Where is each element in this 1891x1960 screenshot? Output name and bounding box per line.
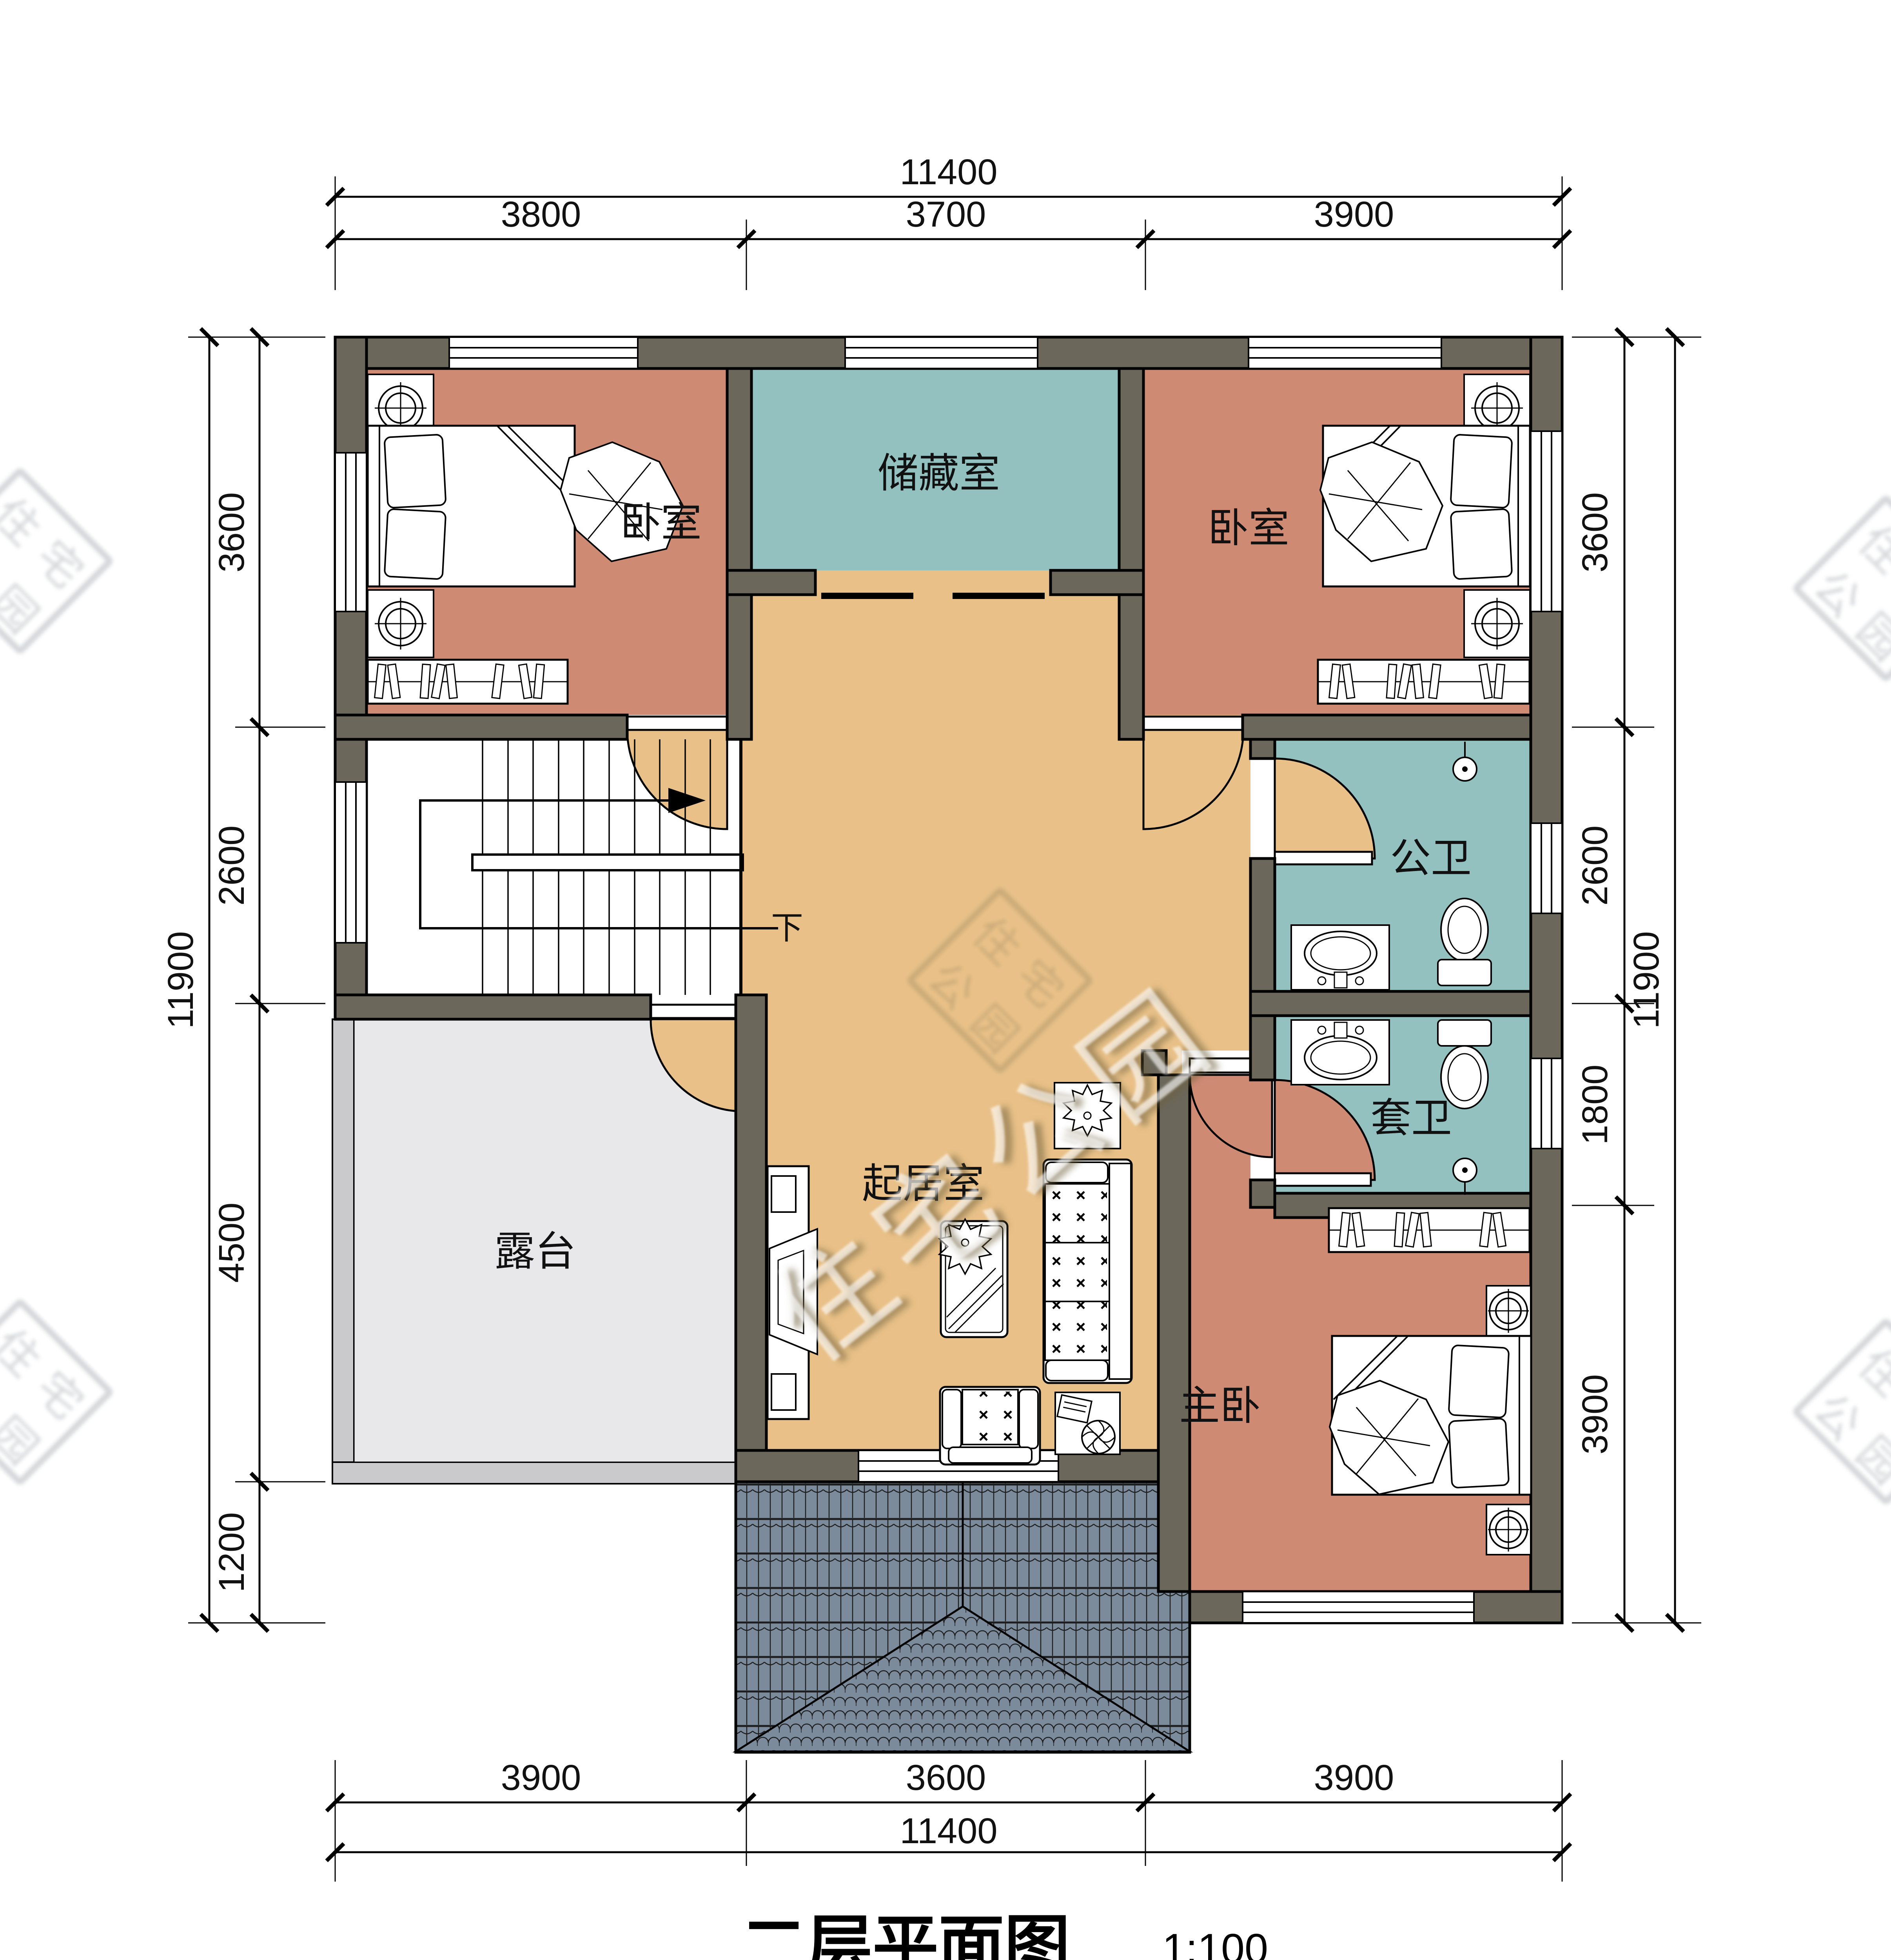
- dim-left-total: 11900: [161, 931, 201, 1029]
- label-storage: 储藏室: [878, 449, 1000, 497]
- window-stair-west: [335, 782, 367, 943]
- terrace-parapet-left: [332, 1019, 354, 1484]
- bookshelf: [368, 660, 568, 704]
- dim-bottom-seg-2: 3900: [1314, 1758, 1394, 1798]
- dim-top-seg-0: 3800: [501, 194, 581, 234]
- window-bedroomR-top: [1249, 337, 1441, 368]
- wall-storage-south-b: [1051, 570, 1143, 595]
- public-bath-door-leaf: [1275, 852, 1372, 864]
- title-scale: 1:100: [1162, 1925, 1268, 1960]
- label-bedroom-left: 卧室: [620, 498, 702, 546]
- window-ensuite-bath-east: [1531, 1058, 1562, 1149]
- dim-bottom-total: 11400: [900, 1811, 997, 1851]
- window-bedroomL-west: [335, 453, 367, 612]
- page-title: 二层平面图: [741, 1907, 1070, 1960]
- window-bedroomL-top: [449, 337, 638, 368]
- storage-opening-tick-left: [821, 593, 913, 599]
- label-master: 主卧: [1179, 1382, 1261, 1430]
- label-stair-down: 下: [771, 909, 803, 947]
- wall-bedroomR-south: [1243, 715, 1531, 739]
- floor-plan-drawing: 卧室 储藏室 卧室 公卫 套卫 起居室 露台 主卧 下 11400 3800 3…: [0, 0, 1891, 1960]
- pillow: [1448, 1345, 1509, 1417]
- wall-living-east: [1158, 1075, 1190, 1592]
- dimensions-right: 3600 2600 1800 3900 11900: [1572, 328, 1701, 1632]
- dim-bottom-seg-1: 3600: [906, 1758, 986, 1798]
- roof: [736, 1482, 1190, 1752]
- storage-opening-tick-right: [953, 593, 1045, 599]
- pillow: [385, 509, 446, 579]
- bookshelf: [1318, 660, 1530, 704]
- dim-left-seg-1: 2600: [212, 826, 252, 906]
- dim-left-seg-2: 4500: [212, 1203, 252, 1283]
- label-terrace: 露台: [494, 1227, 576, 1275]
- label-ensuite-bath: 套卫: [1370, 1094, 1452, 1142]
- sink: [1291, 925, 1389, 990]
- label-bedroom-right: 卧室: [1208, 504, 1289, 552]
- bedroom-right-door-leaf: [1143, 717, 1243, 730]
- title-block: 二层平面图 1:100: [696, 1907, 1268, 1960]
- wall-stair-south: [335, 995, 651, 1019]
- terrace-door-leaf: [651, 1005, 743, 1018]
- pillow: [1449, 1418, 1509, 1488]
- dimensions-bottom: 3900 3600 3900 11400: [327, 1758, 1571, 1882]
- dimensions-left: 11900 3600 2600 4500 1200: [161, 328, 325, 1632]
- label-living: 起居室: [862, 1160, 984, 1207]
- wall-bath-west-b: [1250, 858, 1275, 1080]
- dim-right-seg-1: 2600: [1575, 826, 1615, 906]
- dim-right-seg-2: 1800: [1575, 1065, 1615, 1145]
- wall-bedroomL-south: [335, 715, 627, 739]
- dim-right-seg-0: 3600: [1575, 492, 1615, 573]
- wall-bath-divider: [1250, 991, 1531, 1016]
- side-table: [1054, 1083, 1120, 1149]
- wall-bedroomL-east: [727, 368, 751, 739]
- window-master-south: [1243, 1592, 1474, 1623]
- wall-hall-master-stub: [1142, 1051, 1166, 1075]
- dim-right-total: 11900: [1626, 931, 1666, 1029]
- wall-bath-west-a: [1250, 739, 1275, 759]
- wall-living-west: [736, 995, 766, 1450]
- dim-top-seg-2: 3900: [1314, 194, 1394, 234]
- dim-bottom-seg-0: 3900: [501, 1758, 581, 1798]
- armchair: [940, 1387, 1040, 1465]
- wall-bedroomR-west: [1119, 368, 1143, 739]
- dim-top-total: 11400: [900, 152, 997, 192]
- toilet: [1438, 898, 1491, 985]
- dim-top-seg-1: 3700: [906, 194, 986, 234]
- sink: [1291, 1020, 1389, 1085]
- stair-railing: [472, 855, 743, 870]
- pillow: [1450, 434, 1512, 508]
- dim-right-seg-3: 3900: [1575, 1374, 1615, 1455]
- magazine-table: [1055, 1392, 1120, 1454]
- bookshelf: [1329, 1208, 1530, 1252]
- terrace-parapet-bottom: [332, 1462, 736, 1484]
- label-public-bath: 公卫: [1390, 834, 1472, 882]
- floor-plan-canvas: 卧室 储藏室 卧室 公卫 套卫 起居室 露台 主卧 下 11400 3800 3…: [0, 0, 1891, 1960]
- pillow: [384, 434, 446, 508]
- dimensions-top: 11400 3800 3700 3900: [327, 152, 1571, 290]
- window-storage-top: [845, 337, 1038, 368]
- window-bedroomR-east: [1531, 431, 1562, 612]
- dim-left-seg-0: 3600: [212, 492, 252, 573]
- sofa: [1043, 1160, 1132, 1383]
- ensuite-bath-door-leaf: [1275, 1173, 1371, 1186]
- dim-left-seg-3: 1200: [212, 1512, 252, 1593]
- wall-bath-west-c: [1250, 1180, 1275, 1207]
- coffee-table: [939, 1219, 1007, 1337]
- wall-storage-south-a: [727, 570, 815, 595]
- pillow: [1451, 509, 1512, 579]
- window-public-bath-east: [1531, 823, 1562, 913]
- bedroom-left-door-leaf: [627, 717, 727, 730]
